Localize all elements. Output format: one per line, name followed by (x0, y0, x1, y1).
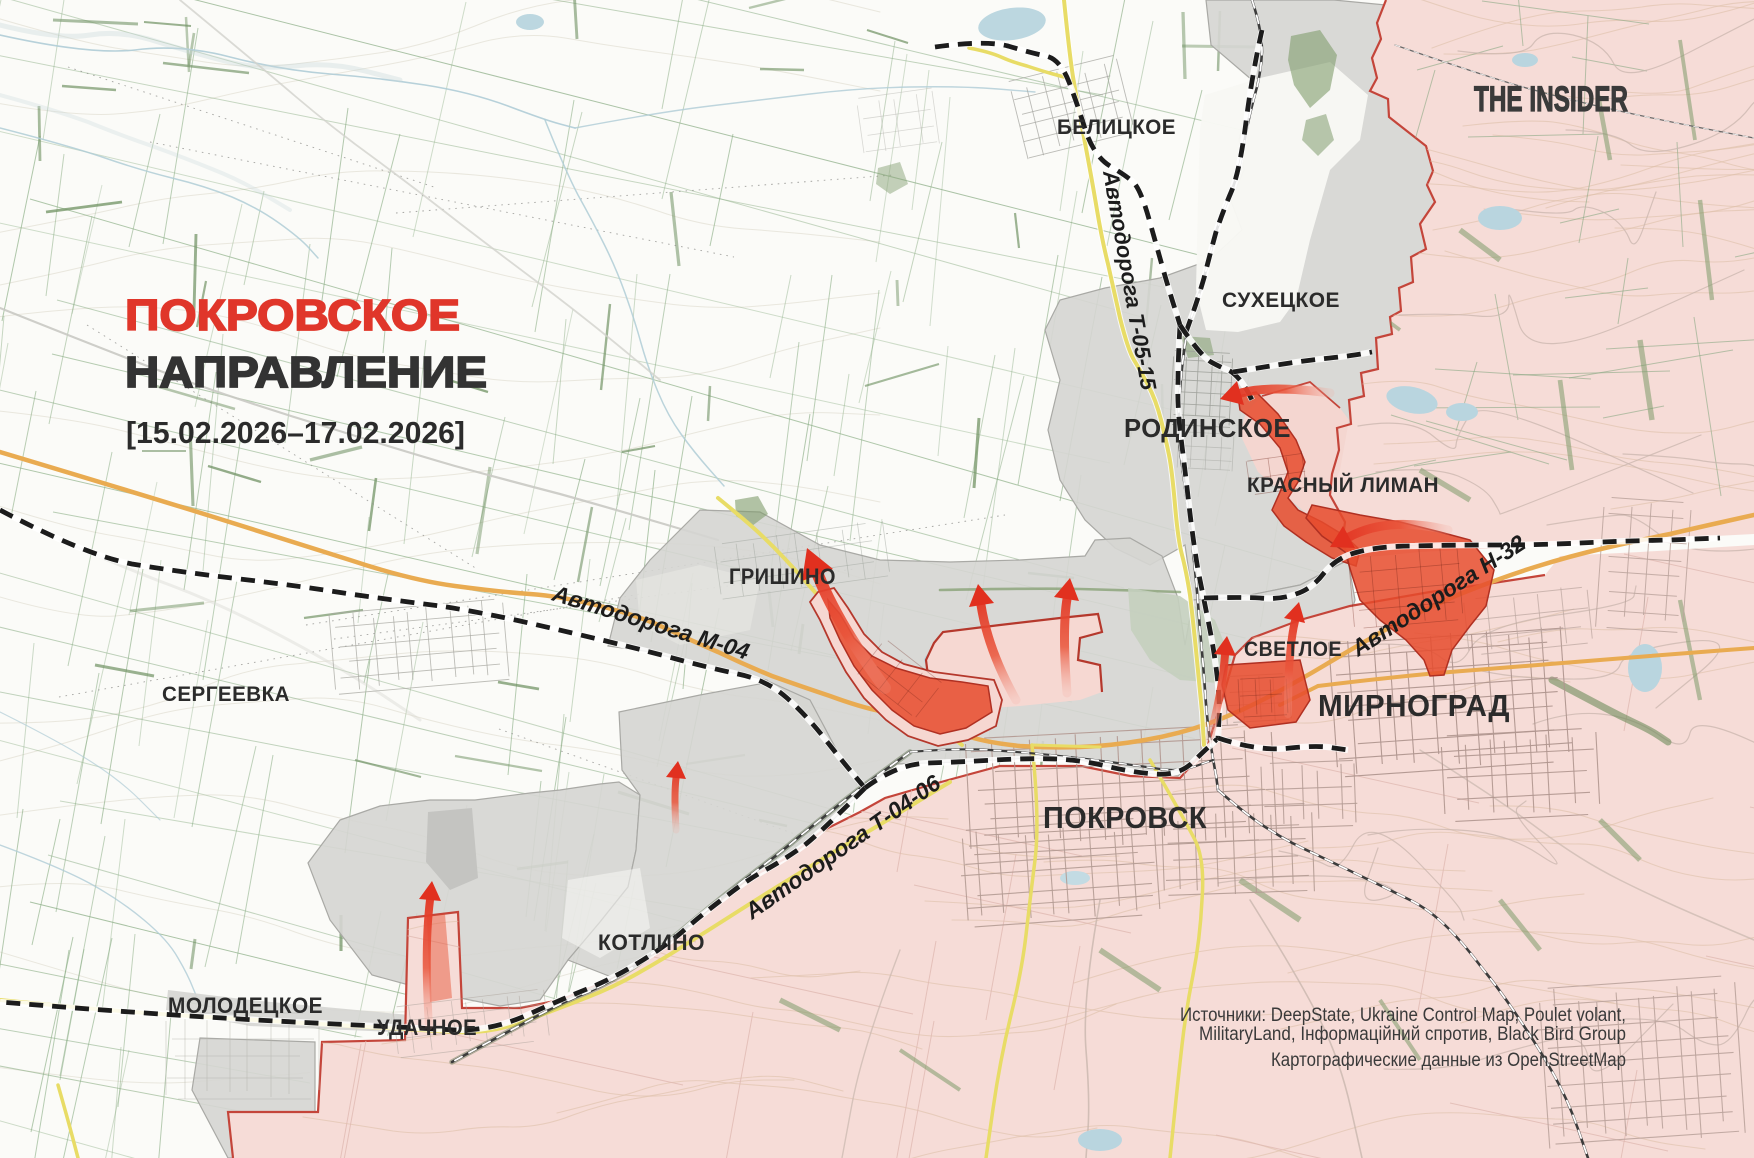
svg-text:УДАЧНОЕ: УДАЧНОЕ (377, 1015, 477, 1040)
svg-text:МИРНОГРАД: МИРНОГРАД (1318, 688, 1510, 723)
svg-text:ГРИШИНО: ГРИШИНО (729, 564, 836, 589)
svg-text:СВЕТЛОЕ: СВЕТЛОЕ (1244, 638, 1342, 661)
svg-text:КРАСНЫЙ ЛИМАН: КРАСНЫЙ ЛИМАН (1247, 473, 1439, 497)
svg-text:СУХЕЦКОЕ: СУХЕЦКОЕ (1222, 289, 1340, 312)
svg-text:THE INSIDER: THE INSIDER (1474, 80, 1628, 119)
svg-text:Картографические данные из Ope: Картографические данные из OpenStreetMap (1271, 1050, 1626, 1071)
svg-text:ПОКРОВСКОЕ: ПОКРОВСКОЕ (125, 291, 460, 340)
svg-text:РОДИНСКОЕ: РОДИНСКОЕ (1124, 413, 1291, 443)
svg-text:СЕРГЕЕВКА: СЕРГЕЕВКА (162, 683, 290, 706)
svg-text:КОТЛИНО: КОТЛИНО (598, 930, 705, 955)
svg-text:ПОКРОВСК: ПОКРОВСК (1043, 800, 1207, 835)
svg-text:[15.02.2026–17.02.2026]: [15.02.2026–17.02.2026] (126, 415, 465, 450)
svg-text:MilitaryLand, Інформаційний сп: MilitaryLand, Інформаційний спротив, Bla… (1199, 1024, 1626, 1045)
svg-text:Источники: DeepState, Ukraine: Источники: DeepState, Ukraine Control Ma… (1180, 1005, 1626, 1026)
svg-text:НАПРАВЛЕНИЕ: НАПРАВЛЕНИЕ (125, 348, 487, 397)
svg-text:БЕЛИЦКОЕ: БЕЛИЦКОЕ (1057, 116, 1176, 139)
svg-text:МОЛОДЕЦКОЕ: МОЛОДЕЦКОЕ (168, 993, 323, 1018)
